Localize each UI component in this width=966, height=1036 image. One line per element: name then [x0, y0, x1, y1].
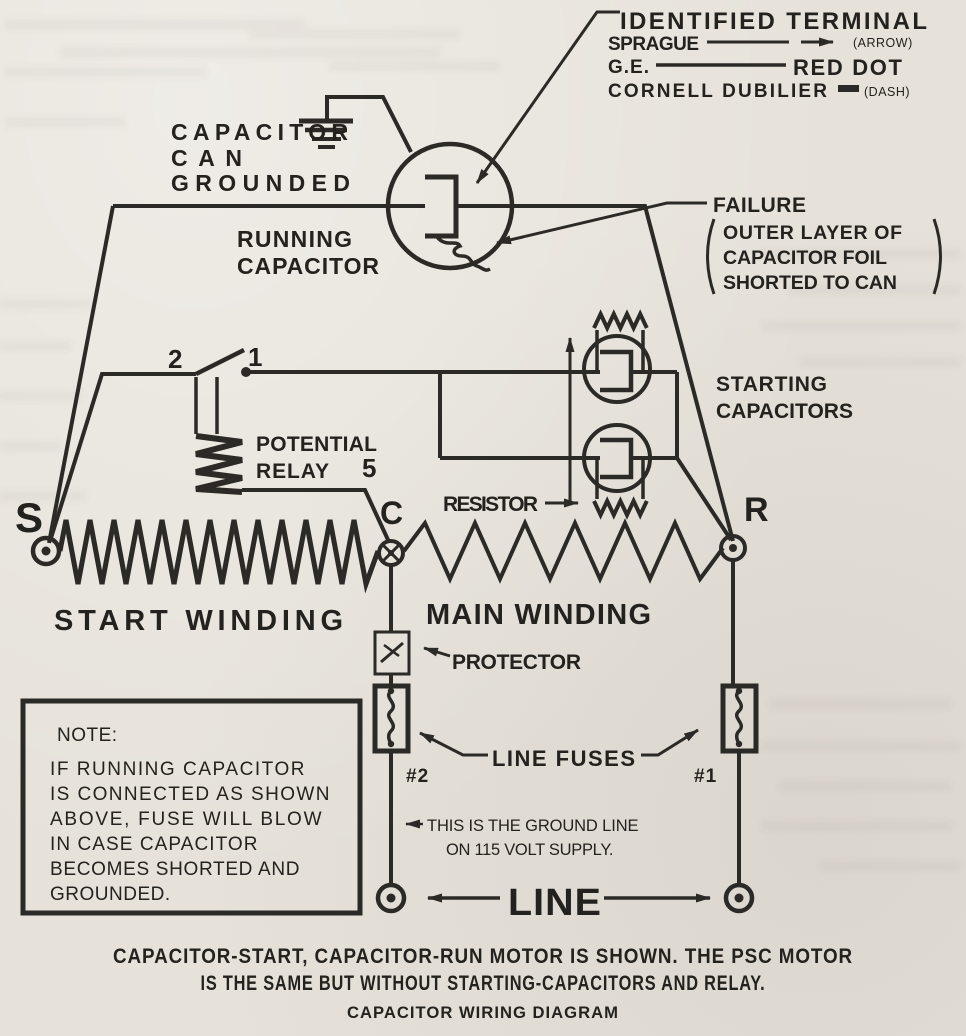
- failure-label: FAILURE: [713, 194, 807, 217]
- note-line: IF RUNNING CAPACITOR: [50, 759, 305, 780]
- ground-note-label: ON 115 VOLT SUPPLY.: [446, 841, 614, 859]
- capacitor-wiring-diagram: NOTE: IF RUNNING CAPACITOR IS CONNECTED …: [0, 0, 966, 1036]
- line-terminal-left: [378, 885, 404, 911]
- fuse-2-symbol: [375, 686, 408, 751]
- terminal-c-node: [379, 541, 403, 565]
- legend-mark-arrow: (ARROW): [853, 36, 913, 50]
- line-terminal-right: [726, 885, 752, 911]
- starting-capacitors-label: CAPACITORS: [716, 400, 854, 423]
- leader-lines: [406, 12, 707, 824]
- line-fuses-label: LINE FUSES: [492, 746, 636, 771]
- legend-brand-sprague: SPRAGUE: [608, 34, 700, 55]
- ground-note-label: THIS IS THE GROUND LINE: [427, 817, 639, 835]
- potential-relay-label: POTENTIAL: [256, 433, 378, 456]
- legend-brand-cornell: CORNELL DUBILIER: [608, 81, 828, 102]
- terminal-s-node: [33, 538, 59, 564]
- note-line: IS CONNECTED AS SHOWN: [50, 784, 330, 805]
- relay-contact-1-label: 1: [248, 342, 263, 372]
- relay-blade: [196, 350, 244, 374]
- caption-line-1: CAPACITOR-START, CAPACITOR-RUN MOTOR IS …: [113, 945, 853, 968]
- relay-contact-2-label: 2: [168, 344, 183, 374]
- note-heading: NOTE:: [57, 725, 118, 746]
- legend-brand-ge: G.E.: [608, 57, 650, 78]
- note-line: GROUNDED.: [50, 884, 171, 905]
- potential-relay-label: RELAY: [256, 460, 330, 483]
- identified-terminal-leader: [477, 12, 620, 183]
- starting-capacitor-lower-plate: [600, 440, 631, 477]
- starting-capacitor-upper-plate: [600, 352, 631, 390]
- note-line: IN CASE CAPACITOR: [50, 834, 258, 855]
- failure-paren-left: [708, 219, 715, 294]
- failure-leader: [497, 203, 707, 243]
- cornell-dash-icon: [838, 85, 859, 92]
- starting-capacitors-label: STARTING: [716, 373, 828, 396]
- capacitor-can-grounded-label: CAPACITOR: [171, 119, 349, 145]
- start-winding-label: START WINDING: [54, 605, 344, 637]
- running-capacitor-label: RUNNING: [237, 226, 353, 252]
- failure-label: CAPACITOR FOIL: [723, 247, 888, 269]
- legend-mark-dash: (DASH): [864, 85, 910, 99]
- protector-label: PROTECTOR: [452, 651, 582, 674]
- fuse-1-symbol: [723, 686, 756, 751]
- note-line: BECOMES SHORTED AND: [50, 859, 300, 880]
- main-winding-label: MAIN WINDING: [426, 599, 652, 631]
- protector-symbol: [375, 632, 409, 674]
- resistor-label: RESISTOR: [443, 493, 539, 516]
- scanned-page: { "legend": { "title": "IDENTIFIED TERMI…: [0, 0, 966, 1036]
- start-winding-coil: [60, 520, 378, 584]
- line-fuses-leader-right: [641, 730, 698, 755]
- diagram-title: CAPACITOR WIRING DIAGRAM: [347, 1004, 619, 1022]
- running-capacitor-label: CAPACITOR: [237, 253, 380, 279]
- wire-caps-to-r: [677, 372, 731, 540]
- protector-leader: [424, 648, 450, 656]
- starting-capacitors-symbol: [584, 314, 650, 515]
- relay-links: [196, 377, 217, 434]
- note-box: NOTE: IF RUNNING CAPACITOR IS CONNECTED …: [23, 701, 360, 913]
- relay-terminal-5-label: 5: [362, 453, 377, 483]
- running-capacitor-plate: [425, 177, 456, 236]
- failure-label: OUTER LAYER OF: [723, 222, 903, 244]
- capacitor-can-grounded-label: CAN: [171, 145, 243, 171]
- relay-coil: [196, 436, 242, 492]
- terminal-r-label: R: [744, 491, 770, 529]
- line-fuses-leader-left: [420, 733, 488, 755]
- legend-title: IDENTIFIED TERMINAL: [620, 8, 928, 35]
- legend-mark-reddot: RED DOT: [793, 55, 903, 80]
- wire-coil-to-c: [242, 490, 389, 542]
- caption-line-2: IS THE SAME BUT WITHOUT STARTING-CAPACIT…: [201, 972, 766, 995]
- resistor-upper-symbol: [594, 314, 647, 328]
- capacitor-can-grounded-label: GROUNDED: [171, 170, 351, 196]
- line-label: LINE: [508, 882, 602, 924]
- main-winding-coil: [404, 523, 723, 579]
- failure-label: SHORTED TO CAN: [723, 272, 898, 294]
- terminal-c-label: C: [380, 495, 404, 531]
- note-line: ABOVE, FUSE WILL BLOW: [50, 809, 322, 830]
- fuse-1-label: #1: [694, 766, 717, 787]
- fuse-2-label: #2: [406, 766, 429, 787]
- terminal-s-label: S: [15, 494, 44, 541]
- resistor-lower-symbol: [594, 501, 647, 515]
- bleedthrough-texture: [0, 20, 960, 870]
